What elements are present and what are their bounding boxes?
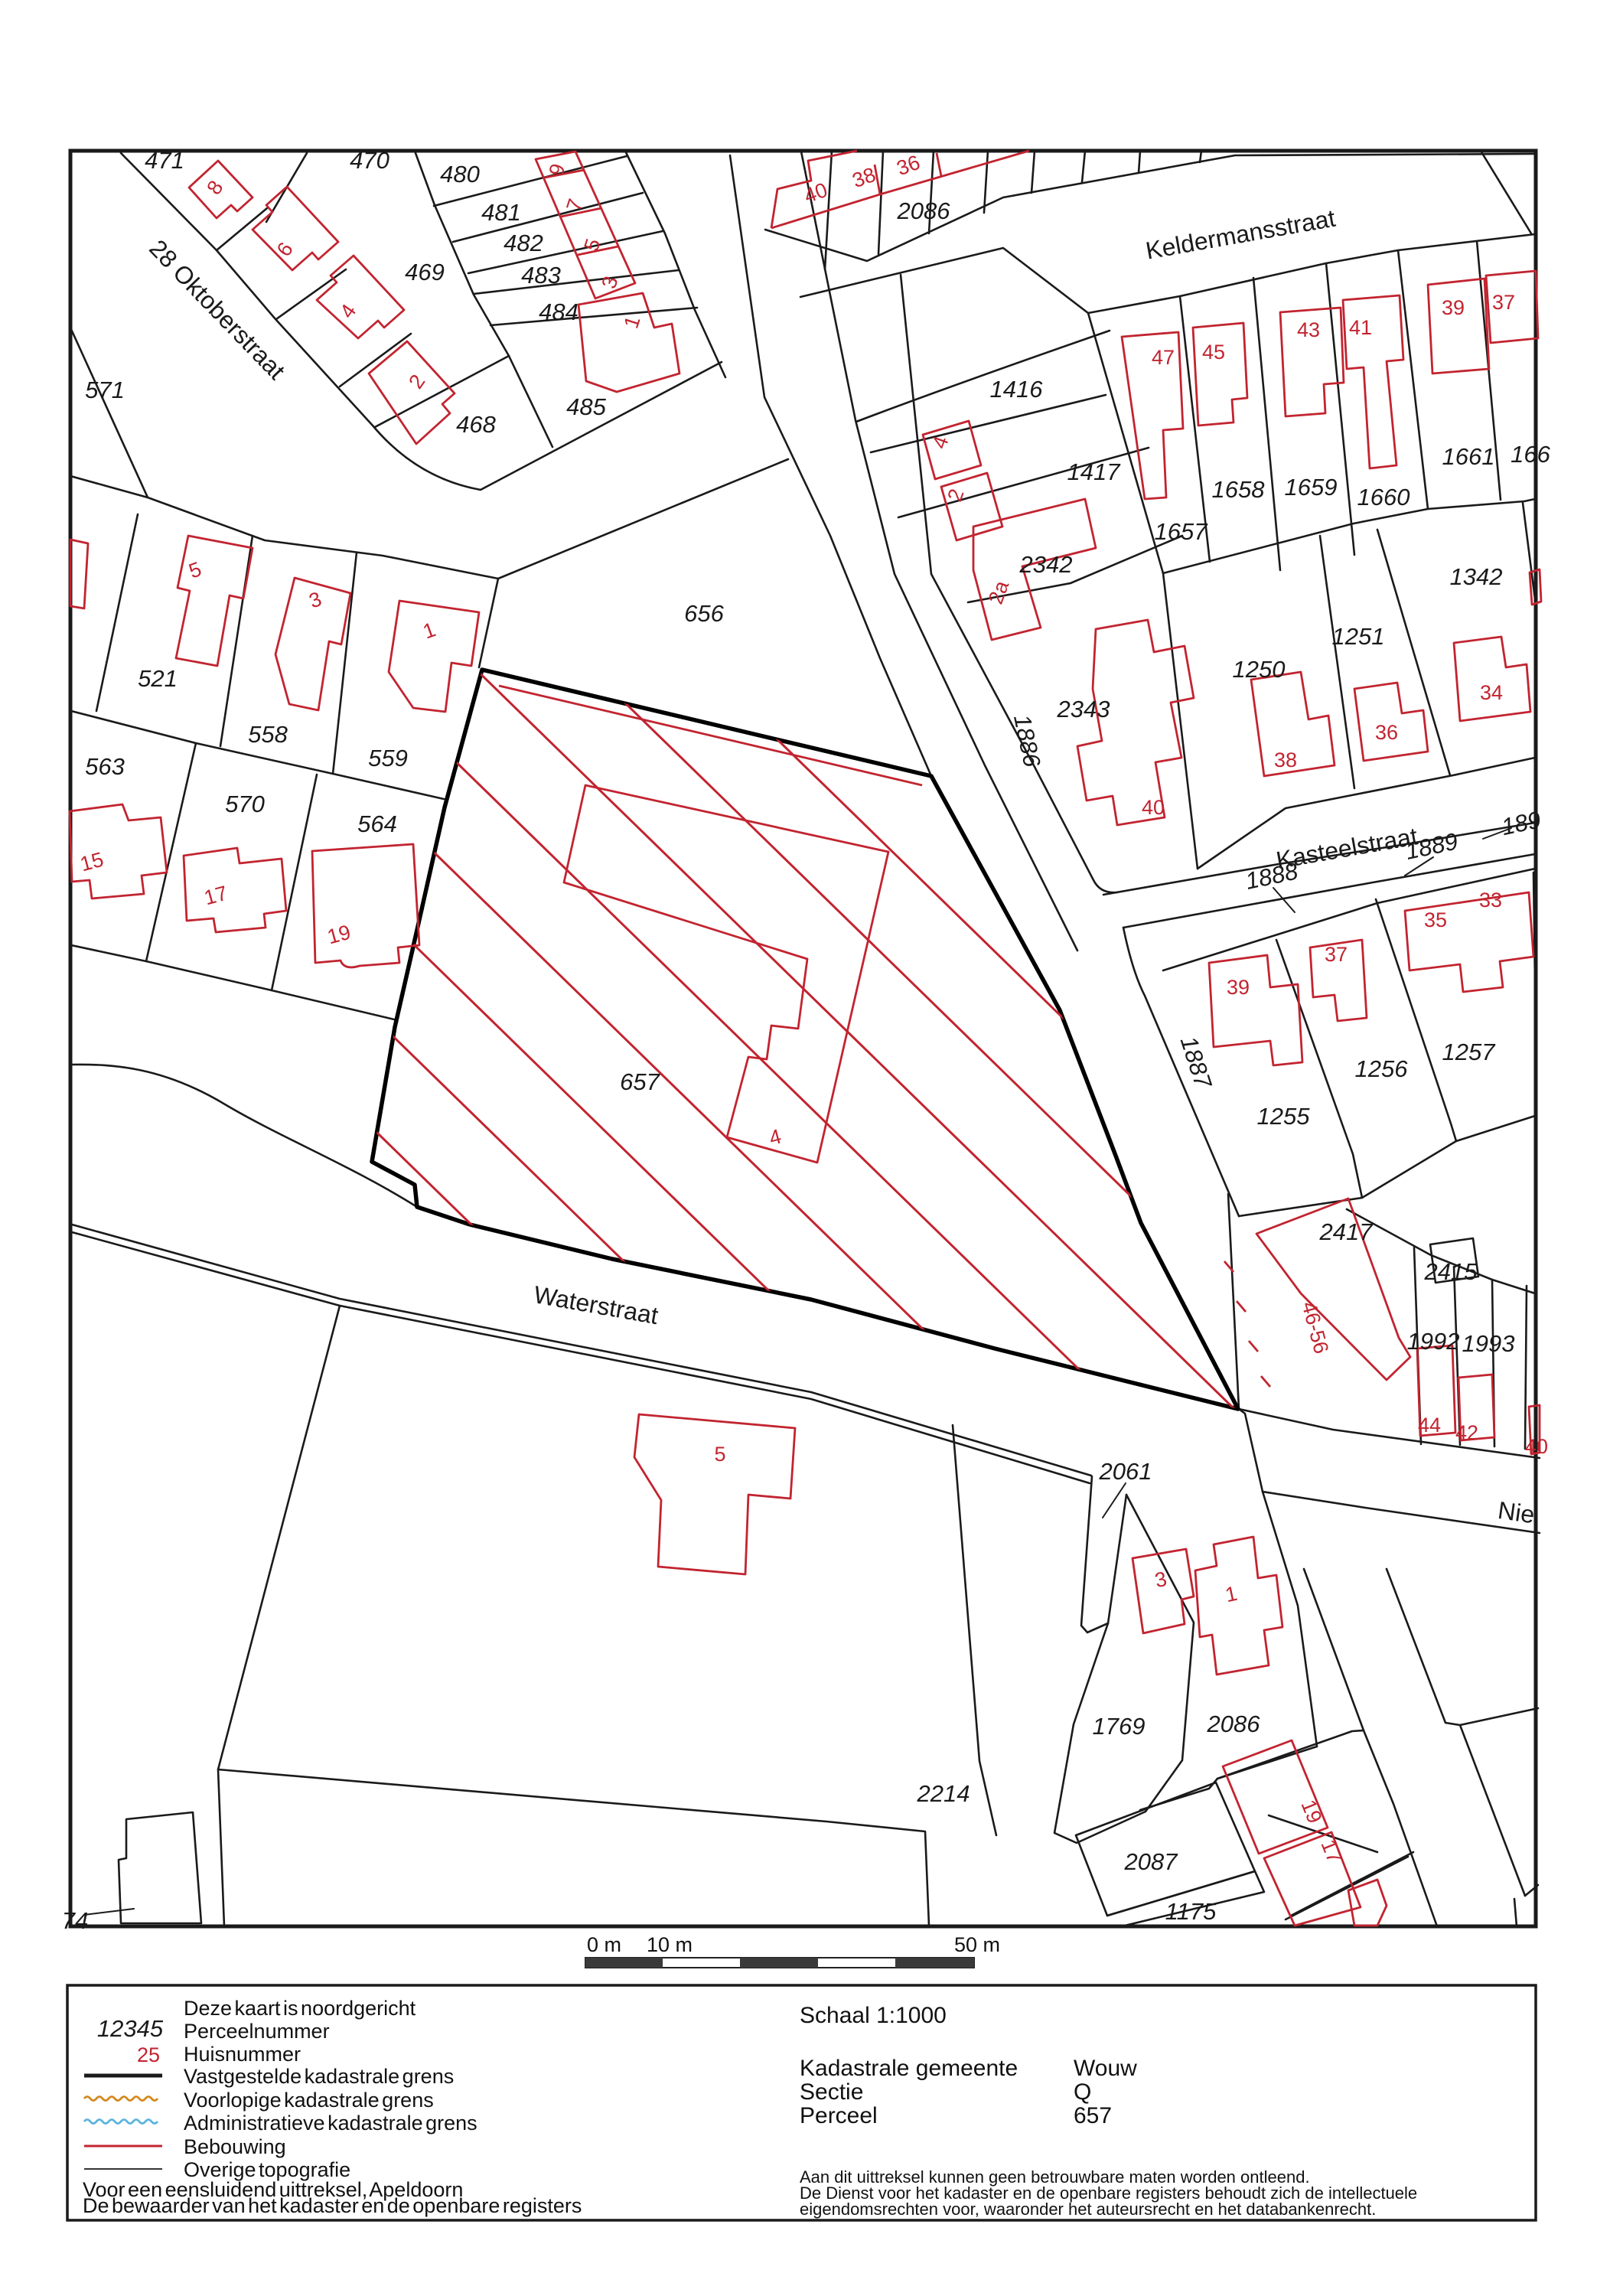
svg-text:482: 482 [504, 230, 543, 256]
svg-text:36: 36 [894, 151, 923, 180]
svg-text:1175: 1175 [1165, 1898, 1217, 1925]
svg-text:2417: 2417 [1319, 1218, 1374, 1245]
svg-text:43: 43 [1297, 318, 1320, 341]
svg-text:1658: 1658 [1212, 476, 1266, 503]
svg-text:40: 40 [1525, 1435, 1548, 1458]
svg-text:12345: 12345 [97, 2015, 164, 2042]
svg-text:Huisnummer: Huisnummer [184, 2043, 301, 2066]
svg-text:657: 657 [620, 1068, 660, 1095]
svg-text:47: 47 [1152, 346, 1175, 369]
svg-text:4: 4 [767, 1125, 784, 1150]
svg-text:Vastgestelde kadastrale grens: Vastgestelde kadastrale grens [184, 2065, 454, 2088]
svg-text:38: 38 [1274, 748, 1297, 771]
svg-text:41: 41 [1349, 316, 1372, 339]
svg-text:485: 485 [566, 393, 606, 420]
svg-text:563: 563 [85, 753, 125, 780]
svg-text:2061: 2061 [1099, 1458, 1152, 1485]
svg-text:1: 1 [1224, 1582, 1240, 1606]
svg-text:1255: 1255 [1257, 1103, 1311, 1130]
svg-text:1: 1 [420, 618, 438, 643]
svg-text:50 m: 50 m [954, 1933, 1000, 1956]
svg-text:1886: 1886 [1009, 712, 1046, 769]
svg-text:Perceel: Perceel [800, 2103, 878, 2128]
svg-text:Wouw: Wouw [1074, 2056, 1137, 2081]
svg-text:480: 480 [440, 161, 480, 188]
svg-text:2a: 2a [984, 577, 1014, 607]
svg-text:45: 45 [1202, 341, 1225, 364]
svg-text:1256: 1256 [1355, 1055, 1409, 1082]
svg-text:5: 5 [579, 236, 605, 254]
svg-text:1992: 1992 [1407, 1328, 1460, 1355]
svg-text:1659: 1659 [1285, 474, 1338, 501]
svg-text:Perceelnummer: Perceelnummer [184, 2020, 330, 2043]
svg-text:15: 15 [78, 848, 106, 876]
svg-text:Sectie: Sectie [800, 2079, 863, 2105]
svg-text:564: 564 [357, 810, 397, 837]
svg-text:570: 570 [225, 791, 265, 817]
svg-text:1993: 1993 [1462, 1330, 1515, 1357]
svg-text:39: 39 [1227, 976, 1250, 999]
svg-text:469: 469 [405, 259, 445, 285]
svg-text:657: 657 [1074, 2103, 1112, 2128]
svg-text:571: 571 [85, 377, 125, 403]
svg-text:3: 3 [597, 273, 622, 292]
svg-text:33: 33 [1479, 889, 1502, 912]
svg-text:521: 521 [138, 665, 178, 692]
svg-text:2086: 2086 [1207, 1711, 1261, 1737]
svg-text:42: 42 [1455, 1421, 1478, 1444]
svg-text:Kadastrale gemeente: Kadastrale gemeente [800, 2056, 1018, 2081]
svg-text:17: 17 [202, 882, 230, 910]
svg-text:Schaal 1:1000: Schaal 1:1000 [800, 2003, 947, 2028]
svg-text:37: 37 [1325, 943, 1348, 966]
svg-text:eigendomsrechten voor, waarond: eigendomsrechten voor, waaronder het aut… [800, 2200, 1376, 2219]
svg-text:559: 559 [368, 745, 408, 771]
svg-text:1257: 1257 [1442, 1039, 1497, 1065]
svg-text:1660: 1660 [1357, 484, 1410, 510]
svg-text:8: 8 [202, 176, 227, 199]
svg-text:2415: 2415 [1424, 1258, 1478, 1285]
svg-text:Deze kaart is noordgericht: Deze kaart is noordgericht [184, 1997, 416, 2020]
svg-text:471: 471 [145, 147, 184, 174]
svg-text:558: 558 [248, 721, 288, 748]
svg-text:37: 37 [1492, 291, 1515, 314]
svg-text:0 m: 0 m [587, 1933, 621, 1956]
svg-text:1251: 1251 [1332, 623, 1385, 650]
svg-text:Administratieve kadastrale gre: Administratieve kadastrale grens [184, 2112, 477, 2135]
svg-text:Nie: Nie [1496, 1496, 1537, 1528]
svg-text:4: 4 [335, 300, 360, 323]
svg-text:Kasteelstraat: Kasteelstraat [1274, 822, 1419, 874]
svg-text:40: 40 [1142, 796, 1165, 819]
svg-text:74: 74 [62, 1907, 88, 1934]
svg-text:468: 468 [456, 411, 496, 438]
svg-text:19: 19 [1296, 1796, 1326, 1826]
svg-text:1250: 1250 [1233, 656, 1286, 683]
svg-text:2343: 2343 [1057, 696, 1110, 722]
svg-text:2086: 2086 [897, 197, 951, 224]
svg-text:481: 481 [481, 199, 521, 226]
svg-text:2: 2 [943, 486, 968, 504]
svg-text:Voorlopige kadastrale grens: Voorlopige kadastrale grens [184, 2089, 434, 2112]
svg-text:1342: 1342 [1450, 563, 1503, 590]
svg-text:46-56: 46-56 [1297, 1299, 1333, 1355]
svg-text:2087: 2087 [1124, 1848, 1179, 1875]
svg-text:1661: 1661 [1442, 443, 1495, 470]
svg-text:39: 39 [1442, 296, 1465, 319]
svg-text:7: 7 [562, 196, 587, 214]
svg-text:2214: 2214 [917, 1780, 970, 1807]
svg-text:25: 25 [137, 2043, 160, 2066]
svg-text:Bebouwing: Bebouwing [184, 2135, 286, 2158]
svg-text:28 Oktoberstraat: 28 Oktoberstraat [144, 234, 291, 385]
svg-text:470: 470 [350, 147, 389, 174]
svg-text:1416: 1416 [990, 376, 1044, 403]
svg-text:1657: 1657 [1155, 518, 1209, 545]
svg-text:44: 44 [1418, 1414, 1441, 1437]
svg-text:483: 483 [521, 262, 561, 289]
svg-text:34: 34 [1480, 681, 1503, 704]
svg-text:5: 5 [186, 557, 204, 582]
svg-text:3: 3 [306, 587, 324, 612]
svg-text:5: 5 [714, 1443, 725, 1466]
svg-text:1769: 1769 [1093, 1713, 1146, 1740]
svg-text:1: 1 [619, 313, 644, 331]
svg-text:1417: 1417 [1067, 458, 1122, 485]
svg-text:Keldermansstraat: Keldermansstraat [1143, 204, 1337, 265]
svg-text:166: 166 [1511, 441, 1550, 468]
svg-text:De bewaarder van het kadaster: De bewaarder van het kadaster en de open… [83, 2194, 582, 2217]
svg-text:484: 484 [539, 298, 578, 325]
svg-text:35: 35 [1424, 908, 1447, 931]
svg-text:10 m: 10 m [647, 1933, 693, 1956]
svg-text:36: 36 [1375, 721, 1398, 744]
svg-text:2: 2 [404, 370, 429, 393]
svg-text:6: 6 [272, 238, 298, 261]
svg-text:Q: Q [1074, 2079, 1091, 2105]
svg-text:656: 656 [684, 600, 724, 627]
svg-text:Waterstraat: Waterstraat [532, 1280, 660, 1329]
svg-text:2342: 2342 [1019, 551, 1073, 578]
svg-text:19: 19 [325, 921, 354, 949]
